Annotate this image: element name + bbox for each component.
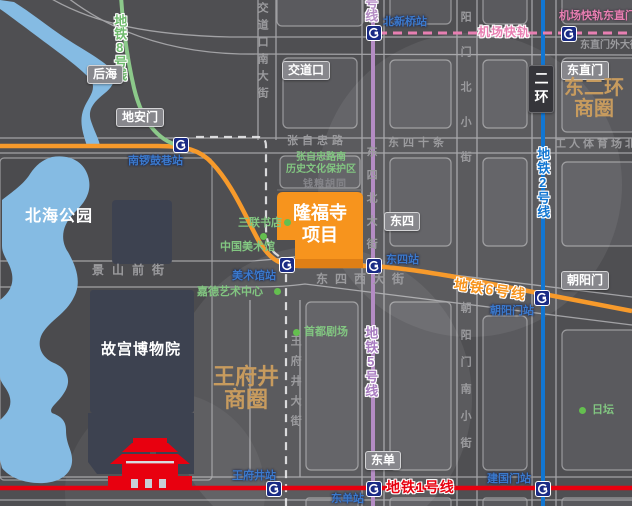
heritage-zone-line1: 张自忠路南 (275, 152, 367, 164)
badge-erhuan: 二环 (528, 65, 554, 113)
project-name-line2: 项目 (277, 224, 363, 246)
street-chaoyangmen-beixiaojie: 朝阳门北小街 (459, 0, 471, 186)
line5-top-label: 号线 (363, 0, 377, 22)
station-chaoyangmen: 朝阳门站 (490, 305, 534, 317)
airport-express-label: 机场快轨 (478, 26, 530, 39)
line5-label: 地铁5号线 (363, 326, 377, 398)
area-dongerhuan-district: 东二环 商圈 (554, 78, 632, 120)
metro-logo-chaoyangmen (535, 291, 550, 306)
metro-logo-meishuguan (280, 258, 295, 273)
badge-dongsi: 东四 (384, 212, 420, 231)
metro-logo-nanluogu (174, 138, 189, 153)
street-zhangzizhong: 张自忠路 (287, 135, 347, 147)
line2-label: 地铁2号线 (535, 147, 549, 219)
wangfujing-line1: 王府井 (204, 365, 288, 388)
badge-dongdan: 东单 (365, 451, 401, 470)
station-dongsi: 东四站 (386, 254, 419, 266)
project-name-line1: 隆福寺 (277, 202, 363, 224)
area-wangfujing-district: 王府井 商圈 (204, 365, 288, 411)
heritage-zone-label: 张自忠路南 历史文化保护区 (275, 152, 367, 176)
poi-capital-theatre: 首都剧场 (304, 326, 348, 338)
metro-logo-dongdan (367, 482, 382, 497)
badge-jiaodaokou: 交道口 (282, 61, 330, 80)
poi-dot-capital-theatre (293, 329, 300, 336)
street-dongsixi: 东四西大街 (316, 273, 411, 286)
jingshan-block (112, 200, 172, 264)
station-meishuguan: 美术馆站 (232, 270, 276, 282)
gate-ledge (126, 461, 174, 463)
street-jingshanqian: 景山前街 (92, 264, 172, 277)
poi-dot-namoc (260, 233, 267, 240)
badge-chaoyangmen: 朝阳门 (561, 271, 609, 290)
poi-namoc: 中国美术馆 (220, 241, 275, 253)
metro-logo-wangfujing (267, 482, 282, 497)
street-chaoyangmen-nanxiaojie: 朝阳门南小街 (459, 302, 471, 464)
street-wangfujing-dajie: 王府井大街 (289, 335, 301, 435)
area-beihai-park: 北海公园 (25, 208, 93, 226)
station-beixinqiao: 北新桥站 (383, 16, 427, 28)
street-jiaodaokou-nandajie: 交道口南大街 (256, 2, 268, 104)
poi-dot-guardian (274, 288, 281, 295)
poi-ritan: 日坛 (592, 404, 614, 416)
station-airport-dongzhimen: 机场快轨东直门站 (559, 10, 632, 22)
station-jianguomen: 建国门站 (487, 473, 531, 485)
station-nanluogu: 南锣鼓巷站 (128, 155, 183, 167)
line1-label: 地铁1号线 (386, 480, 455, 495)
longfusi-project-label: 隆福寺 项目 (277, 202, 363, 246)
dongerhuan-line2: 商圈 (554, 99, 632, 120)
badge-dianmen: 地安门 (116, 108, 164, 127)
wangfujing-line2: 商圈 (204, 388, 288, 411)
street-qianliang-hutong: 钱粮胡同 (303, 179, 347, 190)
station-wangfujing: 王府井站 (232, 470, 276, 482)
beijing-longfusi-map: 交道口南大街 张自忠路 东四十条 工人体育场北路 东直门外大街 钱粮胡同 景山前… (0, 0, 632, 506)
poi-guardian-art-center: 嘉德艺术中心 (197, 286, 263, 298)
gate-doors (131, 479, 166, 488)
metro-logo-beixinqiao (367, 26, 382, 41)
poi-sanlian-bookstore: 三联书店 (238, 217, 282, 229)
street-dongsishitiao: 东四十条 (388, 137, 448, 149)
metro-logo-airport-dongzhimen (562, 27, 577, 42)
station-dongdan: 东单站 (331, 493, 364, 505)
metro-logo-jianguomen (536, 482, 551, 497)
heritage-zone-line2: 历史文化保护区 (275, 164, 367, 176)
dongerhuan-line1: 东二环 (554, 78, 632, 99)
street-dongzhimenwai: 东直门外大街 (580, 40, 632, 51)
street-gongti: 工人体育场北路 (555, 138, 632, 150)
area-gugong-museum: 故宫博物院 (101, 342, 181, 359)
badge-houhai: 后海 (87, 65, 123, 84)
poi-dot-ritan (579, 407, 586, 414)
